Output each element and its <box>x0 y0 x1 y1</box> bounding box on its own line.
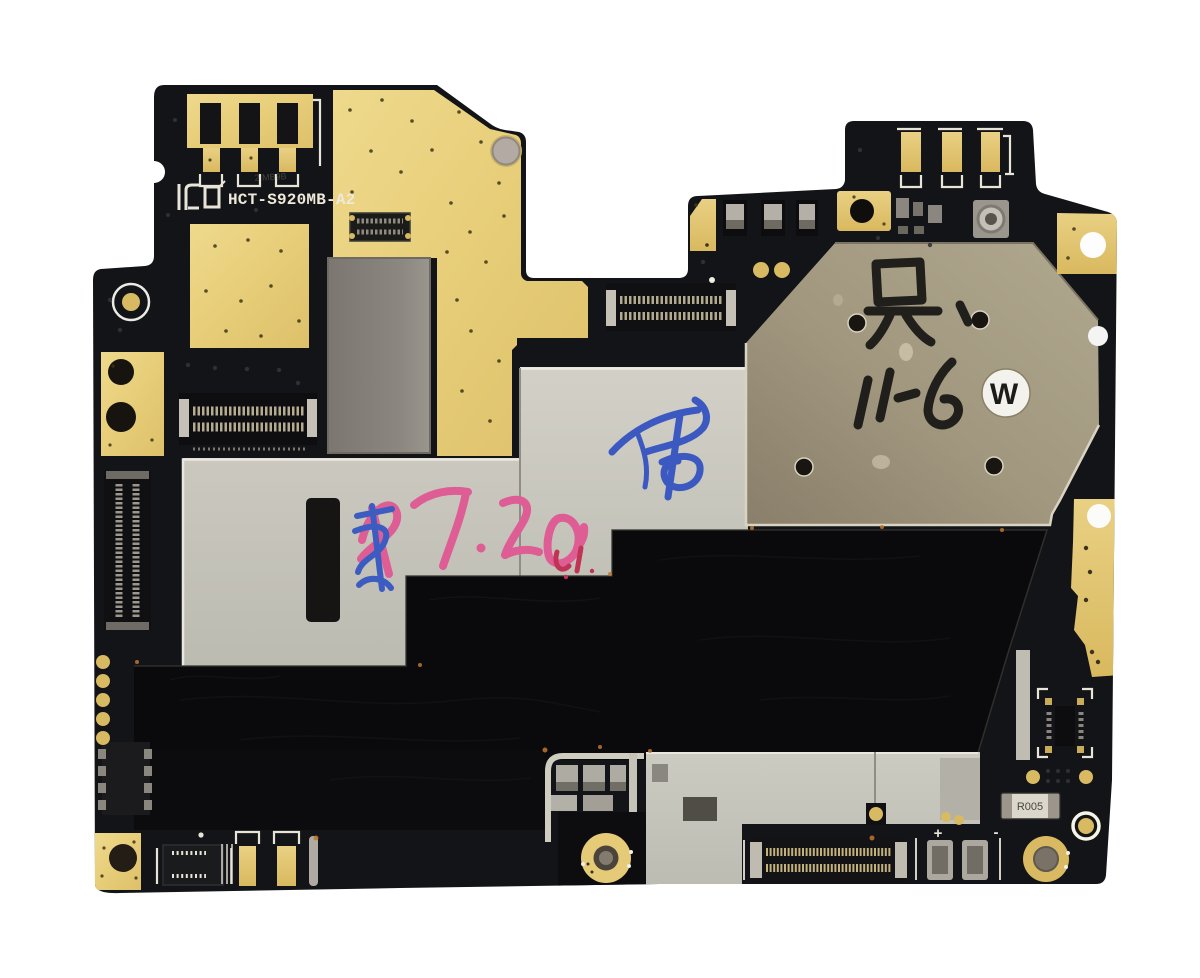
svg-text:2 MB9B: 2 MB9B <box>254 171 286 183</box>
svg-text:R005: R005 <box>1017 801 1043 813</box>
svg-text:W: W <box>990 378 1019 411</box>
svg-text:-: - <box>994 824 999 841</box>
svg-text:+: + <box>934 825 943 842</box>
svg-text:HCT-S920MB-A2: HCT-S920MB-A2 <box>228 191 355 209</box>
